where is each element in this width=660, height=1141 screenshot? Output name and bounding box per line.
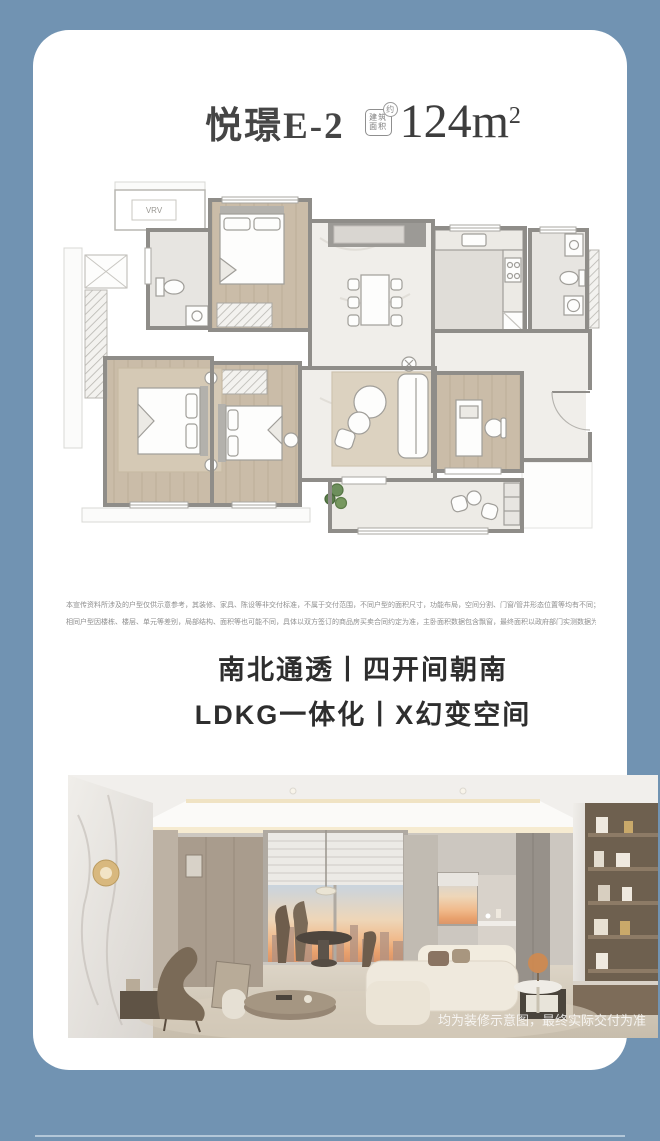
photo-watermark: 均为装修示意图，最终实际交付为准 [438,1013,646,1028]
master-bed [118,368,222,472]
vrv-label: VRV [146,206,163,215]
living-room-set [332,357,432,466]
coffee-tables [222,989,336,1020]
area-group: 建筑 面积 约 124m2 [365,98,521,146]
title-row: 悦璟E-2 建筑 面积 约 124m2 [33,92,660,152]
bedroom3-bed [220,206,284,284]
tagline-2: LDKG一体化丨X幻变空间 [33,693,660,738]
floorplan-svg: VRV [60,178,600,560]
ac-platform: VRV [115,190,205,230]
interior-photo: 均为装修示意图，最终实际交付为准 [68,775,658,1038]
tagline-1: 南北通透丨四开间朝南 [33,648,660,693]
area-value: 124m2 [400,98,521,146]
taglines-block: 南北通透丨四开间朝南 LDKG一体化丨X幻变空间 [33,648,660,738]
shelving-unit [573,803,658,1015]
area-badge-line2: 面积 [366,122,391,131]
dining-table [348,275,402,326]
disclaimer-line2: 相同户型因楼栋、楼层、单元等差别，局部结构、面积等也可能不同，具体以双方签订的商… [66,613,596,630]
interior-photo-svg: 均为装修示意图，最终实际交付为准 [68,775,658,1038]
area-badge: 建筑 面积 约 [365,109,392,136]
disclaimer-block: 本宣传资料所涉及的户型仅供示意参考，其装修、家具、陈设等非交付标准，不属于交付范… [66,596,596,634]
approx-badge: 约 [383,102,398,117]
plan-title: 悦璟E-2 [205,95,345,149]
disclaimer-line1: 本宣传资料所涉及的户型仅供示意参考，其装修、家具、陈设等非交付标准，不属于交付范… [66,596,596,613]
area-exponent: 2 [509,103,521,129]
floorplan-drawing: VRV [60,178,600,560]
ceiling [68,775,658,833]
dining-bay-niche [328,221,426,247]
brochure-card: 悦璟E-2 建筑 面积 约 124m2 [33,30,627,1070]
page-background: 悦璟E-2 建筑 面积 约 124m2 [0,0,660,1141]
wardrobes [217,303,272,394]
amber-lamp [528,953,548,973]
next-card-edge [35,1135,625,1137]
